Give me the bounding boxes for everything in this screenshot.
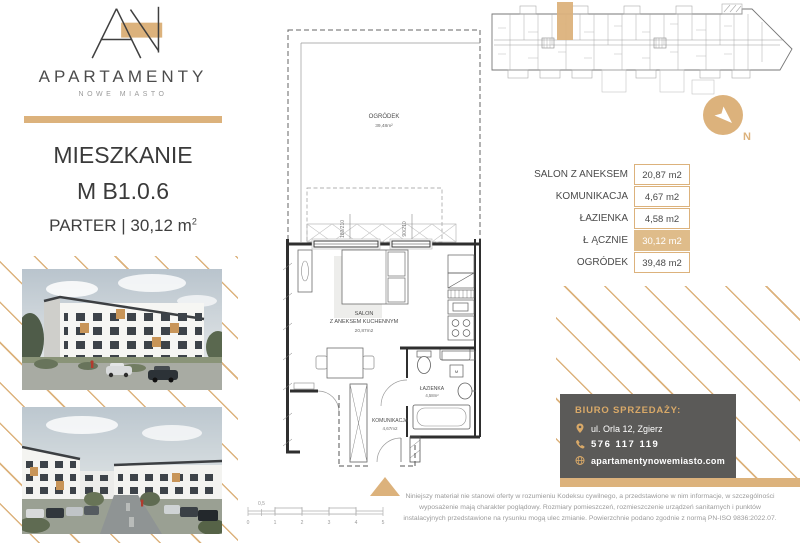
scale-3: 3 xyxy=(328,520,331,526)
kitchen-units xyxy=(440,255,474,360)
entrance-arrow xyxy=(370,477,400,496)
washbasin xyxy=(458,383,472,399)
area-sup: 2 xyxy=(192,216,197,226)
bathroom-area: 4,58m² xyxy=(425,393,439,398)
garden-boundary xyxy=(288,30,480,243)
title-unit-number: M B1.0.6 xyxy=(6,178,240,205)
site-plan xyxy=(484,2,800,108)
area-value: 30,12 m xyxy=(130,216,191,235)
brochure-page: APARTAMENTY NOWE MIASTO MIESZKANIE M B1.… xyxy=(0,0,800,543)
title-mieszkanie: MIESZKANIE xyxy=(6,142,240,169)
scale-5: 5 xyxy=(382,520,385,526)
scale-0: 0 xyxy=(247,520,250,526)
office-phone-row[interactable]: 576 117 119 xyxy=(575,439,728,450)
scale-1: 1 xyxy=(274,520,277,526)
table-row: KOMUNIKACJA 4,67 m2 xyxy=(520,185,690,207)
table-row: SALON Z ANEKSEM 20,87 m2 xyxy=(520,163,690,185)
salon-label-2: Z ANEKSEM KUCHENNYM xyxy=(330,319,399,325)
window-large-dim: 180/210 xyxy=(340,220,346,238)
building-photo-1 xyxy=(22,269,222,390)
table-row: ŁAZIENKA 4,58 m2 xyxy=(520,207,690,229)
terrace-outline xyxy=(307,188,442,242)
gold-divider xyxy=(24,116,222,123)
bathroom-label: ŁAZIENKA xyxy=(420,386,445,392)
dining-table xyxy=(327,348,363,378)
office-address-row: ul. Orla 12, Zgierz xyxy=(575,423,728,434)
row-value: 20,87 m2 xyxy=(634,164,690,185)
phone-icon xyxy=(575,439,585,450)
north-label: N xyxy=(743,131,751,143)
brand-logo-icon xyxy=(75,4,171,60)
scale-05: 0,5 xyxy=(258,501,265,507)
table-row-total: Ł ĄCZNIE 30,12 m2 xyxy=(520,229,690,251)
garden-label: OGRÓDEK xyxy=(369,113,400,120)
row-value: 30,12 m2 xyxy=(634,230,690,251)
floor-label: PARTER xyxy=(49,216,116,235)
office-website-row[interactable]: apartamentynowemiasto.com xyxy=(575,455,728,466)
salon-area: 20,87m2 xyxy=(355,328,374,334)
globe-icon xyxy=(575,455,585,466)
scale-bar: 0 0,5 1 2 3 4 5 xyxy=(240,498,390,530)
unit-highlight xyxy=(557,2,573,40)
row-value: 39,48 m2 xyxy=(634,252,690,273)
hall-area: 4,67m2 xyxy=(382,426,398,431)
scale-4: 4 xyxy=(355,520,358,526)
row-value: 4,67 m2 xyxy=(634,186,690,207)
salon-label-1: SALON xyxy=(355,311,374,317)
title-floor-area: PARTER | 30,12 m2 xyxy=(6,216,240,236)
location-pin-icon xyxy=(575,423,585,434)
row-label: KOMUNIKACJA xyxy=(556,191,628,202)
scale-2: 2 xyxy=(301,520,304,526)
building-photo-2 xyxy=(22,407,222,534)
floor-plan: OGRÓDEK 39,48m² 180/210 90/210 xyxy=(278,18,488,510)
compass-icon: N xyxy=(702,94,756,144)
office-website[interactable]: apartamentynowemiasto.com xyxy=(591,456,725,466)
office-address: ul. Orla 12, Zgierz xyxy=(591,424,663,434)
wardrobe xyxy=(298,250,312,292)
compass: N xyxy=(702,94,756,149)
brand-logo: APARTAMENTY NOWE MIASTO xyxy=(14,4,232,98)
row-label: Ł ĄCZNIE xyxy=(583,235,628,246)
brand-name: APARTAMENTY xyxy=(14,67,232,87)
hall-label: KOMUNIKACJA xyxy=(372,418,409,424)
brand-subtitle: NOWE MIASTO xyxy=(14,91,232,98)
row-value: 4,58 m2 xyxy=(634,208,690,229)
gold-bar-bottom xyxy=(560,478,800,487)
separator: | xyxy=(121,216,125,235)
row-label: SALON Z ANEKSEM xyxy=(534,169,628,180)
office-phone[interactable]: 576 117 119 xyxy=(591,439,659,450)
row-label: OGRÓDEK xyxy=(577,257,628,268)
areas-table: SALON Z ANEKSEM 20,87 m2 KOMUNIKACJA 4,6… xyxy=(520,163,690,273)
row-label: ŁAZIENKA xyxy=(580,213,628,224)
apartment-title: MIESZKANIE M B1.0.6 PARTER | 30,12 m2 xyxy=(6,142,240,236)
disclaimer-text: Niniejszy materiał nie stanowi oferty w … xyxy=(402,491,778,525)
table-row: OGRÓDEK 39,48 m2 xyxy=(520,251,690,273)
sales-office-panel: BIURO SPRZEDAŻY: ul. Orla 12, Zgierz 576… xyxy=(560,394,736,478)
garden-area: 39,48m² xyxy=(375,123,393,129)
sales-office-heading: BIURO SPRZEDAŻY: xyxy=(575,405,728,416)
toilet xyxy=(418,357,431,374)
washer-label: M xyxy=(455,369,458,374)
bed xyxy=(342,250,408,304)
window-small-dim: 90/210 xyxy=(402,221,408,237)
